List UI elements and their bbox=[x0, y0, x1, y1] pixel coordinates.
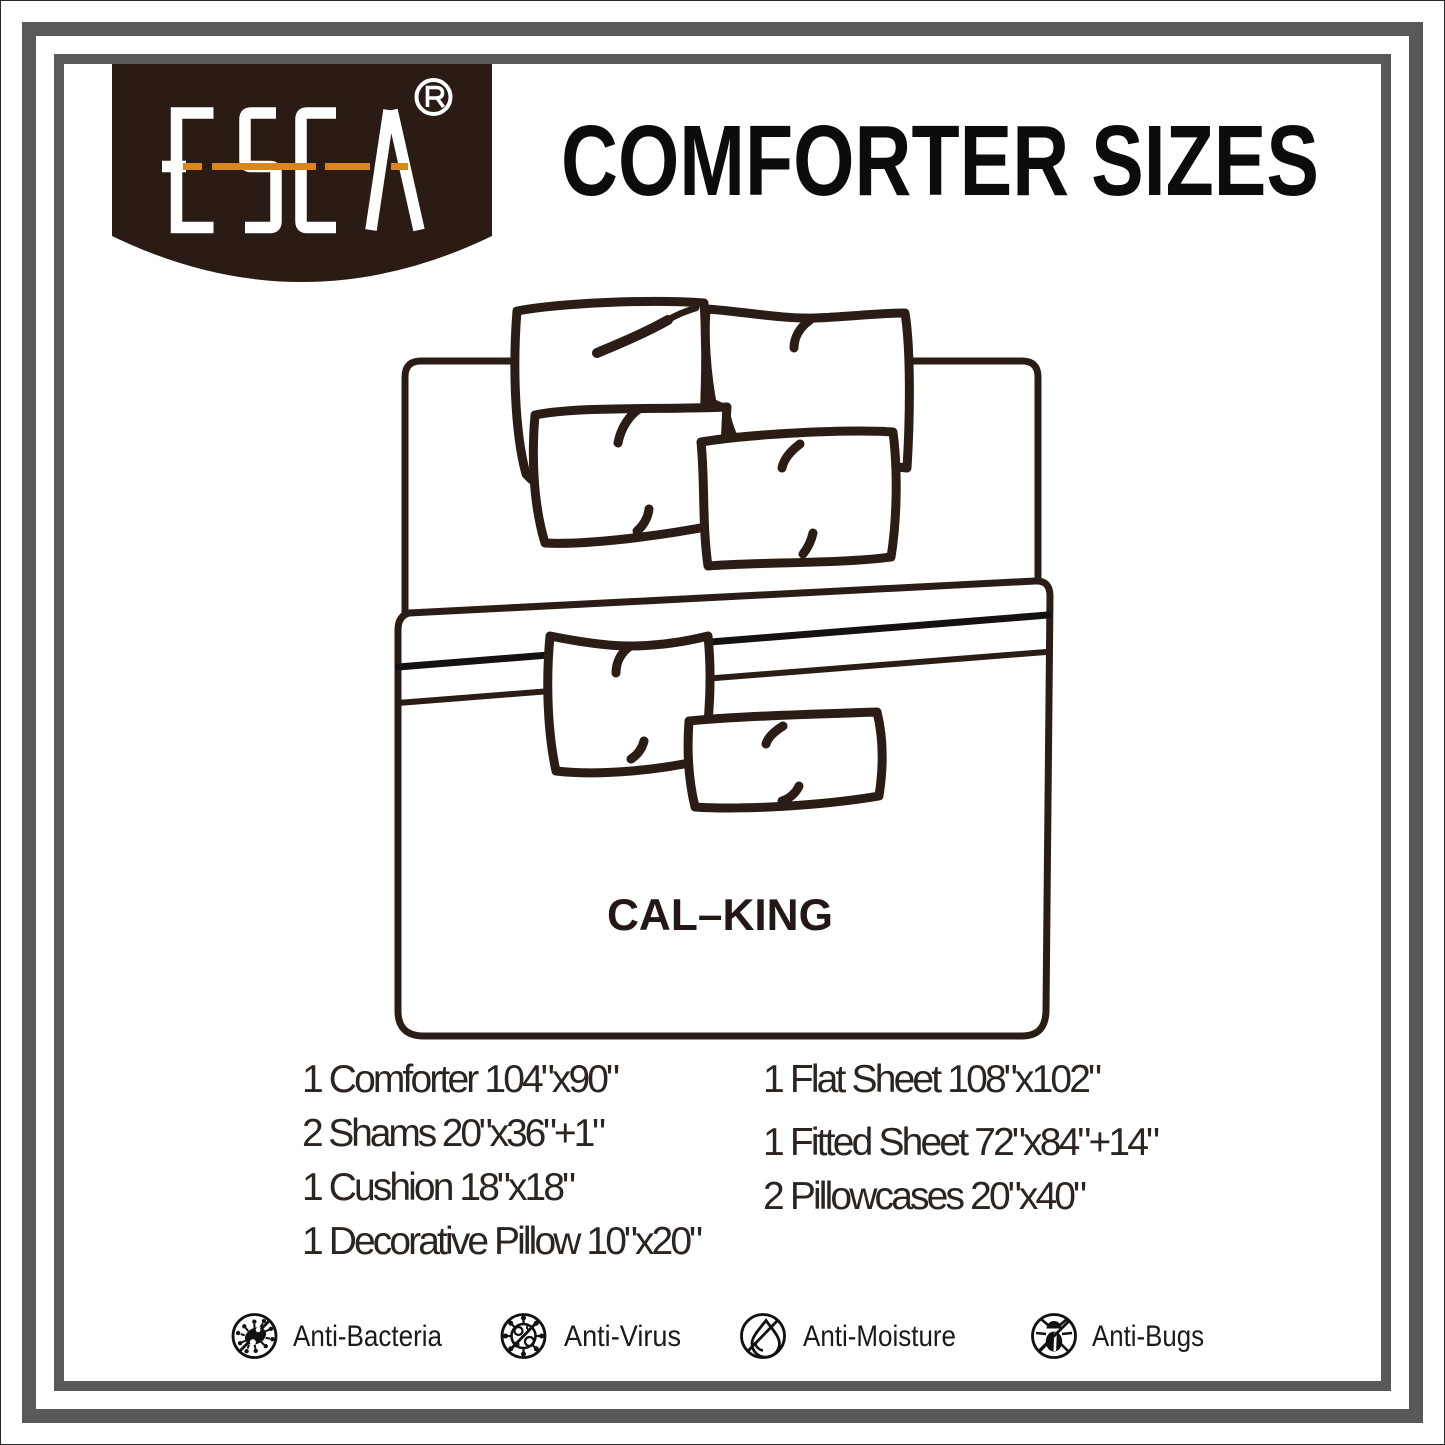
svg-text:1 Flat Sheet 108"x102": 1 Flat Sheet 108"x102" bbox=[763, 1058, 1102, 1101]
svg-text:Anti-Bugs: Anti-Bugs bbox=[1092, 1320, 1204, 1353]
svg-text:1 Cushion 18"x18": 1 Cushion 18"x18" bbox=[302, 1166, 576, 1209]
svg-text:1 Decorative Pillow 10"x20": 1 Decorative Pillow 10"x20" bbox=[302, 1220, 703, 1263]
svg-text:2 Pillowcases 20"x40": 2 Pillowcases 20"x40" bbox=[763, 1175, 1087, 1218]
svg-text:Anti-Virus: Anti-Virus bbox=[564, 1320, 681, 1353]
svg-text:1 Fitted Sheet 72"x84"+14": 1 Fitted Sheet 72"x84"+14" bbox=[763, 1121, 1160, 1164]
svg-text:COMFORTER SIZES: COMFORTER SIZES bbox=[561, 105, 1319, 217]
svg-text:CAL–KING: CAL–KING bbox=[607, 891, 833, 940]
svg-text:Anti-Moisture: Anti-Moisture bbox=[803, 1320, 956, 1353]
svg-text:Anti-Bacteria: Anti-Bacteria bbox=[293, 1320, 442, 1353]
svg-text:2 Shams 20"x36"+1": 2 Shams 20"x36"+1" bbox=[302, 1112, 606, 1155]
svg-text:1 Comforter 104"x90": 1 Comforter 104"x90" bbox=[302, 1058, 620, 1101]
